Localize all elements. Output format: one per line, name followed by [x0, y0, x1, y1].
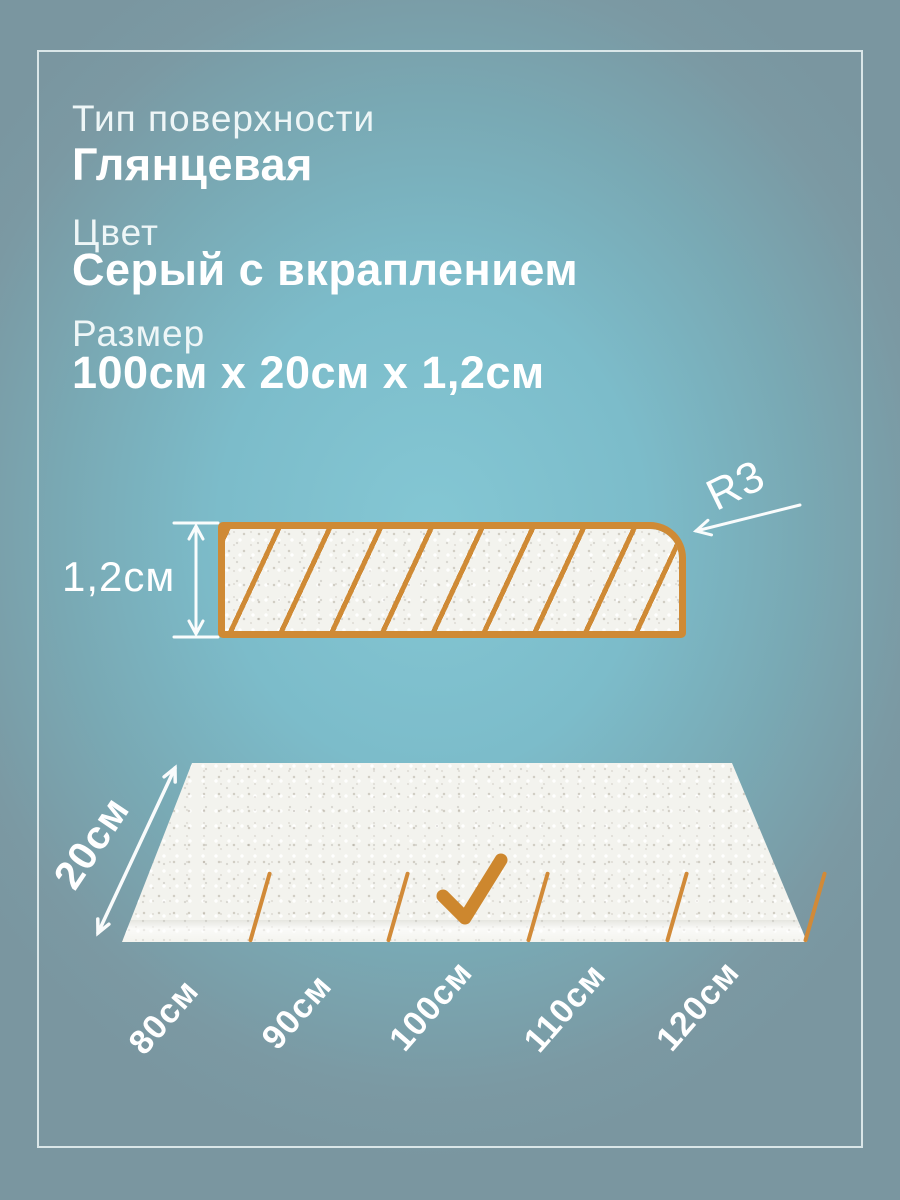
- spec-label-surface-type: Тип поверхности: [72, 100, 375, 137]
- length-option-90: 90см: [256, 968, 338, 1055]
- spec-value-size: 100см x 20см x 1,2см: [72, 350, 545, 395]
- selected-length-checkmark-icon: [435, 850, 515, 930]
- length-tick-120: [803, 871, 827, 942]
- length-option-80: 80см: [123, 973, 205, 1060]
- spec-value-color: Серый с вкраплением: [72, 247, 578, 292]
- panel-cross-section-hatched: [218, 522, 686, 638]
- product-infographic: Тип поверхности Глянцевая Цвет Серый с в…: [0, 0, 900, 1200]
- thickness-dimension-arrow-icon: [172, 514, 222, 646]
- thickness-dimension-label: 1,2см: [62, 556, 175, 598]
- spec-value-surface-type: Глянцевая: [72, 142, 313, 187]
- radius-pointer-arrow-icon: [688, 495, 813, 543]
- length-option-100: 100см: [383, 955, 478, 1057]
- length-option-110: 110см: [518, 958, 612, 1059]
- length-option-120: 120см: [650, 955, 745, 1057]
